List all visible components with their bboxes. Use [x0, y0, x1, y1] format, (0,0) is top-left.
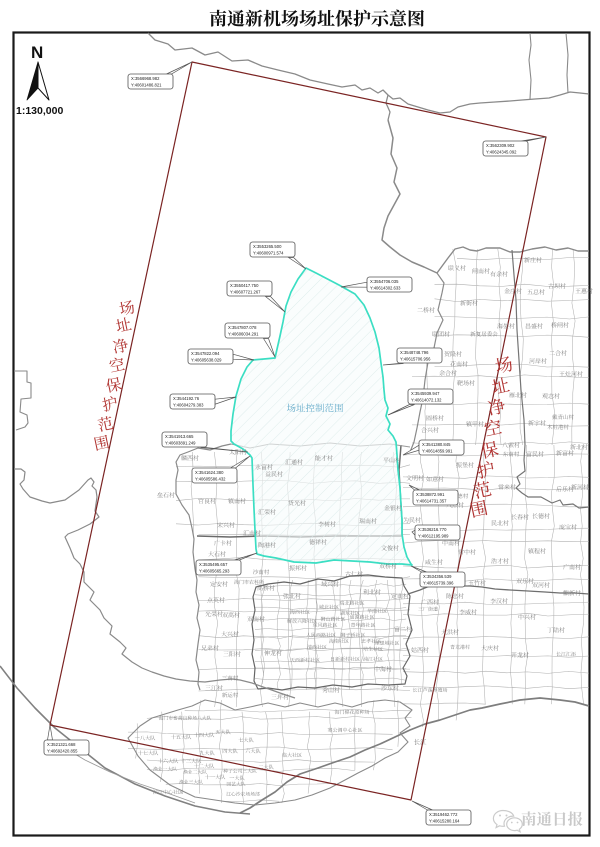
svg-text:X:3547807.078: X:3547807.078: [228, 325, 257, 330]
svg-text:X:3535495.657: X:3535495.657: [199, 562, 228, 567]
svg-text:Y:40600971.574: Y:40600971.574: [253, 250, 284, 255]
svg-text:X:3566968.982: X:3566968.982: [131, 76, 160, 81]
svg-text:Y:40614302.633: Y:40614302.633: [370, 285, 401, 290]
svg-text:Y:40605586.432: Y:40605586.432: [195, 476, 226, 481]
svg-text:Y:40605665.293: Y:40605665.293: [199, 568, 230, 573]
svg-text:X:3545939.947: X:3545939.947: [411, 391, 440, 396]
svg-text:Y:40607721.267: Y:40607721.267: [230, 289, 261, 294]
svg-text:X:3544192.76: X:3544192.76: [173, 396, 200, 401]
svg-text:Y:40615280.164: Y:40615280.164: [429, 818, 460, 823]
svg-text:X:3554706.035: X:3554706.035: [370, 279, 399, 284]
svg-text:Y:40601486.821: Y:40601486.821: [131, 82, 162, 87]
svg-text:X:3519462.772: X:3519462.772: [429, 812, 458, 817]
svg-text:1:130,000: 1:130,000: [16, 105, 63, 117]
svg-text:X:3541624.380: X:3541624.380: [195, 470, 224, 475]
svg-text:X:3521321.668: X:3521321.668: [47, 742, 76, 747]
svg-text:Y:40612195.989: Y:40612195.989: [418, 533, 449, 538]
svg-text:Y:40624345.092: Y:40624345.092: [486, 149, 517, 154]
svg-text:Y:40604279.383: Y:40604279.383: [173, 402, 204, 407]
svg-text:X:3538872.991: X:3538872.991: [416, 492, 445, 497]
svg-text:X:3541380.845: X:3541380.845: [422, 442, 451, 447]
svg-text:Y:40614072.132: Y:40614072.132: [411, 397, 442, 402]
svg-text:X:3548748.796: X:3548748.796: [400, 350, 429, 355]
svg-text:X:3562309.902: X:3562309.902: [486, 143, 515, 148]
svg-text:Y:40614859.991: Y:40614859.991: [422, 448, 453, 453]
svg-text:Y:40606034.291: Y:40606034.291: [228, 331, 259, 336]
svg-text:Y:40692420.855: Y:40692420.855: [47, 748, 78, 753]
svg-text:X:3541913.665: X:3541913.665: [165, 434, 194, 439]
svg-text:Y:40603891.249: Y:40603891.249: [165, 440, 196, 445]
svg-text:X:3536216.770: X:3536216.770: [418, 527, 447, 532]
svg-text:X:3550417.750: X:3550417.750: [230, 283, 259, 288]
svg-text:Y:40615706.956: Y:40615706.956: [400, 356, 431, 361]
svg-text:X:3553265.500: X:3553265.500: [253, 244, 282, 249]
svg-text:X:3534356.539: X:3534356.539: [423, 574, 452, 579]
svg-text:Y:40615739.396: Y:40615739.396: [423, 580, 454, 585]
svg-text:X:3547822.094: X:3547822.094: [191, 351, 220, 356]
svg-text:N: N: [31, 43, 43, 62]
svg-text:Y:40614731.357: Y:40614731.357: [416, 498, 447, 503]
svg-text:Y:40605638.029: Y:40605638.029: [191, 357, 222, 362]
